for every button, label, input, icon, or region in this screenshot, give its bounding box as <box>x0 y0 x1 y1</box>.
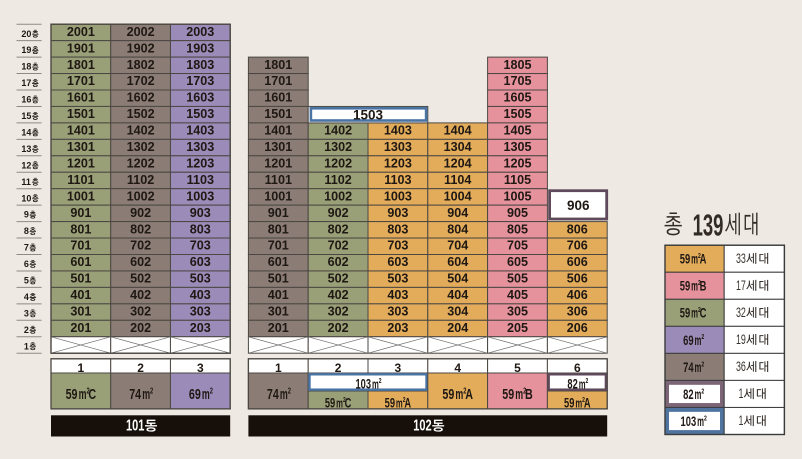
svg-text:103: 103 <box>356 378 372 392</box>
svg-text:2002: 2002 <box>127 25 155 39</box>
svg-text:301: 301 <box>70 305 91 319</box>
svg-text:m: m <box>695 388 702 403</box>
svg-text:601: 601 <box>70 255 91 269</box>
svg-text:A: A <box>700 251 707 267</box>
svg-text:506: 506 <box>567 272 588 286</box>
svg-text:503: 503 <box>190 272 211 286</box>
svg-text:1302: 1302 <box>127 140 155 154</box>
svg-text:1802: 1802 <box>127 58 155 72</box>
svg-text:C: C <box>88 385 96 402</box>
svg-text:906: 906 <box>567 198 590 213</box>
svg-text:14: 14 <box>21 128 31 138</box>
svg-text:2001: 2001 <box>67 25 95 39</box>
svg-text:2: 2 <box>586 377 589 385</box>
svg-text:604: 604 <box>447 255 468 269</box>
svg-text:505: 505 <box>507 272 528 286</box>
svg-text:1605: 1605 <box>503 91 531 105</box>
svg-text:1: 1 <box>738 387 743 401</box>
svg-text:2: 2 <box>701 333 704 341</box>
svg-text:1201: 1201 <box>264 156 292 170</box>
svg-text:1001: 1001 <box>67 189 95 203</box>
svg-text:102: 102 <box>413 416 432 433</box>
svg-text:74: 74 <box>267 385 280 402</box>
svg-text:1204: 1204 <box>444 156 472 170</box>
svg-text:1101: 1101 <box>67 173 94 187</box>
svg-text:1503: 1503 <box>186 107 214 121</box>
svg-text:201: 201 <box>268 321 289 335</box>
svg-text:602: 602 <box>328 255 349 269</box>
svg-text:1203: 1203 <box>186 156 214 170</box>
svg-text:1902: 1902 <box>127 41 155 55</box>
svg-text:901: 901 <box>268 206 289 220</box>
svg-text:201: 201 <box>70 321 91 335</box>
svg-text:504: 504 <box>447 272 468 286</box>
svg-text:16: 16 <box>21 95 31 105</box>
svg-text:202: 202 <box>130 321 151 335</box>
svg-text:82: 82 <box>683 386 694 402</box>
svg-text:901: 901 <box>70 206 91 220</box>
svg-text:1801: 1801 <box>264 58 292 72</box>
svg-text:804: 804 <box>447 222 468 236</box>
svg-text:69: 69 <box>189 385 201 402</box>
svg-text:503: 503 <box>387 272 408 286</box>
svg-text:301: 301 <box>268 305 289 319</box>
svg-text:m: m <box>79 386 87 403</box>
svg-text:103: 103 <box>681 413 697 429</box>
svg-text:1102: 1102 <box>127 173 154 187</box>
svg-text:2: 2 <box>701 360 704 368</box>
svg-text:702: 702 <box>328 239 349 253</box>
svg-text:1703: 1703 <box>186 74 214 88</box>
svg-text:1502: 1502 <box>127 107 155 121</box>
svg-text:m: m <box>697 415 704 430</box>
svg-text:603: 603 <box>190 255 211 269</box>
svg-text:2: 2 <box>24 325 29 335</box>
svg-text:1803: 1803 <box>186 58 214 72</box>
svg-text:m: m <box>691 280 698 295</box>
svg-text:302: 302 <box>130 305 151 319</box>
svg-text:1602: 1602 <box>127 91 155 105</box>
svg-text:m: m <box>455 386 463 403</box>
svg-text:1301: 1301 <box>67 140 95 154</box>
svg-text:801: 801 <box>268 222 289 236</box>
svg-text:701: 701 <box>70 239 91 253</box>
svg-text:1603: 1603 <box>186 91 214 105</box>
svg-text:59: 59 <box>442 385 454 402</box>
svg-text:701: 701 <box>268 239 289 253</box>
svg-text:1203: 1203 <box>384 156 412 170</box>
svg-text:1601: 1601 <box>67 91 95 105</box>
svg-text:603: 603 <box>387 255 408 269</box>
svg-text:1103: 1103 <box>384 173 411 187</box>
svg-text:74: 74 <box>683 359 694 375</box>
svg-text:1403: 1403 <box>186 124 214 138</box>
svg-text:m: m <box>202 386 210 403</box>
svg-text:74: 74 <box>129 385 142 402</box>
svg-text:203: 203 <box>387 321 408 335</box>
svg-text:8: 8 <box>24 226 29 236</box>
svg-text:1505: 1505 <box>503 107 531 121</box>
svg-text:1601: 1601 <box>264 91 292 105</box>
svg-text:59: 59 <box>680 278 691 294</box>
svg-text:m: m <box>695 334 702 349</box>
svg-text:1305: 1305 <box>503 140 531 154</box>
svg-text:1405: 1405 <box>503 124 531 138</box>
svg-text:802: 802 <box>328 222 349 236</box>
svg-text:1701: 1701 <box>67 74 95 88</box>
svg-text:705: 705 <box>507 239 528 253</box>
svg-text:1401: 1401 <box>67 124 95 138</box>
svg-text:2: 2 <box>379 377 382 385</box>
svg-text:205: 205 <box>507 321 528 335</box>
svg-text:18: 18 <box>21 62 31 72</box>
svg-text:3: 3 <box>24 308 29 318</box>
svg-text:36: 36 <box>736 360 746 374</box>
svg-text:m: m <box>579 378 586 393</box>
svg-text:502: 502 <box>328 272 349 286</box>
svg-text:1003: 1003 <box>186 189 214 203</box>
svg-text:1702: 1702 <box>127 74 155 88</box>
svg-text:101: 101 <box>126 416 145 433</box>
svg-text:605: 605 <box>507 255 528 269</box>
svg-text:59: 59 <box>680 305 691 321</box>
svg-text:2: 2 <box>288 388 291 396</box>
svg-text:m: m <box>691 307 698 322</box>
svg-text:1201: 1201 <box>67 156 95 170</box>
svg-text:803: 803 <box>387 222 408 236</box>
svg-text:1: 1 <box>738 414 743 428</box>
svg-text:402: 402 <box>130 288 151 302</box>
svg-text:306: 306 <box>567 305 588 319</box>
svg-text:1403: 1403 <box>384 124 412 138</box>
svg-text:401: 401 <box>70 288 91 302</box>
svg-text:1402: 1402 <box>324 124 352 138</box>
svg-text:401: 401 <box>268 288 289 302</box>
svg-text:1303: 1303 <box>384 140 412 154</box>
svg-text:704: 704 <box>447 239 468 253</box>
svg-text:13: 13 <box>21 144 31 154</box>
svg-text:305: 305 <box>507 305 528 319</box>
svg-text:1402: 1402 <box>127 124 155 138</box>
svg-text:703: 703 <box>387 239 408 253</box>
svg-text:606: 606 <box>567 255 588 269</box>
svg-text:1303: 1303 <box>186 140 214 154</box>
svg-text:1102: 1102 <box>324 173 351 187</box>
svg-text:1501: 1501 <box>264 107 292 121</box>
svg-text:1401: 1401 <box>264 124 292 138</box>
svg-text:m: m <box>142 386 150 403</box>
svg-text:1205: 1205 <box>503 156 531 170</box>
svg-text:1304: 1304 <box>444 140 472 154</box>
svg-text:806: 806 <box>567 222 588 236</box>
svg-text:1805: 1805 <box>503 58 531 72</box>
svg-text:59: 59 <box>502 385 514 402</box>
svg-text:19: 19 <box>21 45 31 55</box>
svg-text:702: 702 <box>130 239 151 253</box>
svg-text:1105: 1105 <box>504 173 531 187</box>
svg-text:1004: 1004 <box>444 189 472 203</box>
svg-text:m: m <box>372 378 379 393</box>
svg-text:404: 404 <box>447 288 468 302</box>
svg-text:302: 302 <box>328 305 349 319</box>
svg-text:801: 801 <box>70 222 91 236</box>
svg-text:6: 6 <box>24 259 29 269</box>
svg-text:10: 10 <box>21 193 31 203</box>
svg-text:905: 905 <box>507 206 528 220</box>
svg-text:1202: 1202 <box>324 156 352 170</box>
svg-text:82: 82 <box>567 378 577 392</box>
svg-text:1101: 1101 <box>265 173 292 187</box>
svg-text:1002: 1002 <box>324 189 352 203</box>
svg-text:1103: 1103 <box>187 173 214 187</box>
svg-text:m: m <box>695 361 702 376</box>
svg-text:59: 59 <box>66 385 78 402</box>
svg-text:59: 59 <box>680 251 691 267</box>
svg-text:1104: 1104 <box>444 173 471 187</box>
svg-text:B: B <box>700 278 707 294</box>
svg-text:803: 803 <box>190 222 211 236</box>
svg-text:501: 501 <box>268 272 289 286</box>
svg-text:1002: 1002 <box>127 189 155 203</box>
svg-text:1503: 1503 <box>353 108 384 123</box>
svg-text:904: 904 <box>447 206 468 220</box>
svg-text:33: 33 <box>736 252 746 266</box>
svg-text:m: m <box>691 253 698 268</box>
svg-text:1705: 1705 <box>503 74 531 88</box>
svg-text:12: 12 <box>21 160 31 170</box>
svg-text:7: 7 <box>24 243 29 253</box>
svg-text:403: 403 <box>387 288 408 302</box>
svg-text:1202: 1202 <box>127 156 155 170</box>
svg-text:11: 11 <box>21 177 31 187</box>
svg-text:402: 402 <box>328 288 349 302</box>
svg-text:5: 5 <box>24 276 29 286</box>
svg-text:1903: 1903 <box>186 41 214 55</box>
svg-text:602: 602 <box>130 255 151 269</box>
svg-text:204: 204 <box>447 321 468 335</box>
svg-text:203: 203 <box>190 321 211 335</box>
svg-text:69: 69 <box>683 332 694 348</box>
svg-text:B: B <box>525 385 533 402</box>
svg-text:1302: 1302 <box>324 140 352 154</box>
svg-text:m: m <box>280 386 288 403</box>
svg-text:601: 601 <box>268 255 289 269</box>
svg-text:501: 501 <box>70 272 91 286</box>
svg-text:903: 903 <box>190 206 211 220</box>
svg-text:502: 502 <box>130 272 151 286</box>
svg-text:1003: 1003 <box>384 189 412 203</box>
svg-text:202: 202 <box>328 321 349 335</box>
svg-text:2003: 2003 <box>186 25 214 39</box>
svg-text:1005: 1005 <box>503 189 531 203</box>
svg-text:20: 20 <box>21 29 31 39</box>
svg-text:805: 805 <box>507 222 528 236</box>
svg-text:706: 706 <box>567 239 588 253</box>
svg-text:902: 902 <box>130 206 151 220</box>
svg-text:903: 903 <box>387 206 408 220</box>
svg-text:1701: 1701 <box>264 74 292 88</box>
svg-text:2: 2 <box>150 388 153 396</box>
svg-text:A: A <box>465 385 473 402</box>
svg-text:1: 1 <box>24 341 29 351</box>
svg-text:m: m <box>515 386 523 403</box>
svg-text:303: 303 <box>387 305 408 319</box>
svg-text:303: 303 <box>190 305 211 319</box>
svg-text:406: 406 <box>567 288 588 302</box>
svg-text:C: C <box>700 305 707 321</box>
svg-text:405: 405 <box>507 288 528 302</box>
svg-text:17: 17 <box>736 279 746 293</box>
svg-text:703: 703 <box>190 239 211 253</box>
svg-text:2: 2 <box>701 387 704 395</box>
svg-text:206: 206 <box>567 321 588 335</box>
svg-text:902: 902 <box>328 206 349 220</box>
svg-text:2: 2 <box>704 415 707 423</box>
svg-text:802: 802 <box>130 222 151 236</box>
svg-text:4: 4 <box>24 292 29 302</box>
svg-text:15: 15 <box>21 111 31 121</box>
svg-text:1501: 1501 <box>67 107 95 121</box>
svg-text:19: 19 <box>736 333 746 347</box>
svg-text:1301: 1301 <box>264 140 292 154</box>
svg-text:9: 9 <box>24 210 29 220</box>
svg-text:1801: 1801 <box>67 58 95 72</box>
svg-text:403: 403 <box>190 288 211 302</box>
svg-text:304: 304 <box>447 305 468 319</box>
svg-text:2: 2 <box>210 388 213 396</box>
svg-text:1404: 1404 <box>444 124 472 138</box>
svg-text:139: 139 <box>693 209 724 243</box>
svg-text:1001: 1001 <box>264 189 292 203</box>
svg-text:32: 32 <box>736 306 746 320</box>
svg-text:17: 17 <box>21 78 31 88</box>
svg-text:1901: 1901 <box>67 41 95 55</box>
